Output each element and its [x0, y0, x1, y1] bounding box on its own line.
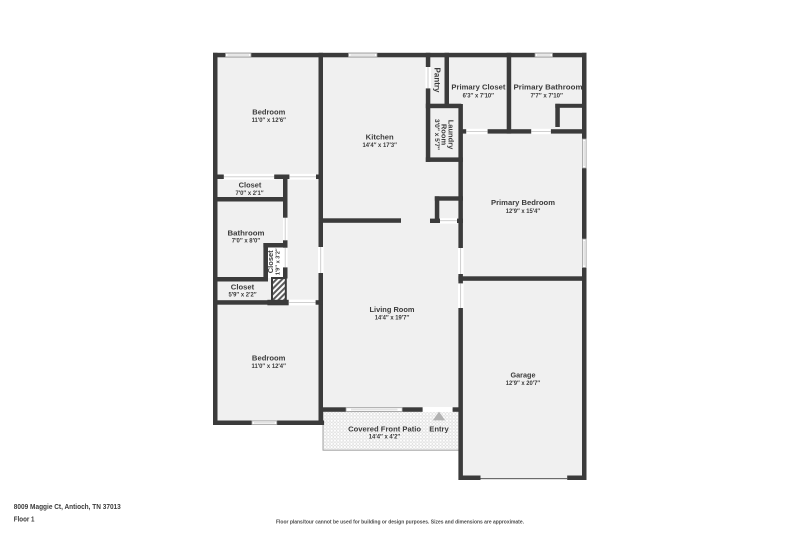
svg-text:Entry: Entry: [429, 425, 449, 434]
svg-text:6′3″ x 7′10″: 6′3″ x 7′10″: [463, 92, 494, 99]
svg-text:7′7″ x 7′10″: 7′7″ x 7′10″: [531, 93, 563, 100]
svg-text:Bedroom: Bedroom: [252, 353, 286, 362]
svg-text:14′4″ x 17′3″: 14′4″ x 17′3″: [362, 142, 397, 149]
svg-text:Bedroom: Bedroom: [252, 108, 285, 117]
svg-text:Bathroom: Bathroom: [228, 229, 265, 238]
svg-text:11′0″ x 12′6″: 11′0″ x 12′6″: [252, 117, 286, 124]
svg-text:14′4″ x 19′7″: 14′4″ x 19′7″: [375, 314, 410, 321]
svg-text:12′9″ x 20′7″: 12′9″ x 20′7″: [506, 380, 540, 387]
svg-text:11′0″ x 12′4″: 11′0″ x 12′4″: [252, 363, 286, 370]
svg-text:5′9″ x 2′2″: 5′9″ x 2′2″: [228, 292, 256, 299]
svg-text:Primary Bathroom: Primary Bathroom: [514, 82, 583, 91]
svg-text:Floor 1: Floor 1: [14, 516, 35, 523]
svg-text:1′9″ x 3′2″: 1′9″ x 3′2″: [275, 248, 281, 275]
svg-text:Pantry: Pantry: [433, 68, 442, 93]
svg-text:Floor plans/tour cannot be use: Floor plans/tour cannot be used for buil…: [276, 520, 524, 526]
svg-text:Closet: Closet: [231, 283, 255, 292]
svg-text:8009 Maggie Ct, Antioch, TN 37: 8009 Maggie Ct, Antioch, TN 37013: [14, 504, 121, 511]
svg-text:14′4″ x 4′2″: 14′4″ x 4′2″: [369, 434, 401, 441]
svg-text:Primary Bedroom: Primary Bedroom: [491, 198, 555, 207]
svg-text:Garage: Garage: [511, 370, 536, 379]
svg-text:Primary Closet: Primary Closet: [451, 82, 505, 91]
svg-text:7′0″ x 8′0″: 7′0″ x 8′0″: [232, 238, 260, 245]
svg-text:Closet: Closet: [266, 250, 275, 273]
svg-text:Covered Front Patio: Covered Front Patio: [348, 425, 421, 434]
svg-text:Living Room: Living Room: [370, 305, 415, 314]
svg-text:Kitchen: Kitchen: [366, 132, 394, 141]
svg-text:3′0″ x 5′7″: 3′0″ x 5′7″: [433, 119, 440, 150]
svg-text:Closet: Closet: [239, 181, 262, 190]
svg-text:Room: Room: [440, 124, 449, 146]
svg-text:7′0″ x 2′1″: 7′0″ x 2′1″: [235, 190, 263, 197]
svg-text:12′9″ x 15′4″: 12′9″ x 15′4″: [506, 208, 540, 215]
